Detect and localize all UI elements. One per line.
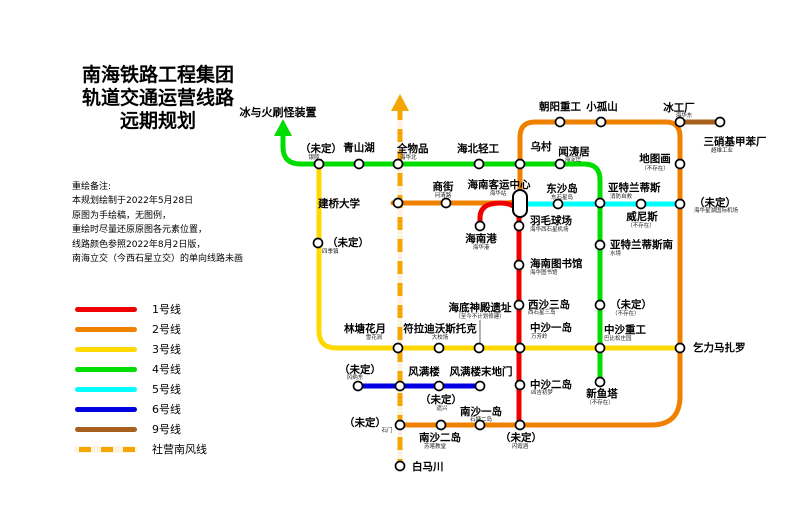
station-name: 海底神殿遗址 bbox=[449, 301, 512, 314]
station-yatelandisinan: 亚特兰蒂斯南 水境 bbox=[596, 238, 674, 257]
station-dot bbox=[596, 199, 605, 208]
station-name: 朝阳重工 bbox=[539, 100, 581, 113]
sheying-up-arrow-icon bbox=[391, 94, 409, 111]
station-dot bbox=[475, 344, 484, 353]
station-subname: 海华港 bbox=[473, 243, 490, 251]
station-dot bbox=[442, 199, 451, 208]
station-dot bbox=[476, 222, 485, 231]
station-dot bbox=[515, 301, 524, 310]
station-xishasandao: 西沙三岛 西石星三岛 bbox=[515, 298, 571, 316]
station-dot bbox=[596, 344, 605, 353]
line4-up-arrow-icon bbox=[274, 119, 292, 136]
station-name: （未定） bbox=[344, 416, 386, 429]
station-subname: 风纳东 bbox=[347, 373, 364, 381]
station-weiding-bucunzai: （未定） （不存在） bbox=[596, 298, 653, 317]
station-dot bbox=[516, 160, 525, 169]
station-dot bbox=[515, 261, 524, 270]
station-dot bbox=[515, 222, 524, 231]
interchange-pill bbox=[513, 190, 527, 217]
station-dot bbox=[516, 344, 525, 353]
station-name: 青山湖 bbox=[343, 141, 375, 154]
station-subname: （至今不计划修建） bbox=[455, 312, 505, 320]
station-subname: 海华东 bbox=[676, 111, 693, 119]
station-dot bbox=[596, 241, 605, 250]
station-jianqiaodaxue: 建桥大学 bbox=[317, 197, 403, 210]
station-hainangang: 海南港 海华港 bbox=[465, 222, 497, 252]
station-subname: 四季镇 bbox=[322, 247, 339, 255]
station-dot bbox=[716, 118, 725, 127]
station-subname: 石塘二岛 bbox=[470, 415, 493, 423]
station-dot bbox=[394, 344, 403, 353]
station-dot bbox=[676, 344, 685, 353]
station-name: 林塘花月 bbox=[344, 322, 386, 335]
station-name: （未定） bbox=[300, 142, 342, 155]
station-baimachuan: 白马川 bbox=[396, 460, 444, 473]
station-subname: 海华西石星机场 bbox=[530, 225, 569, 233]
station-subname: 超维工业 bbox=[711, 146, 734, 154]
station-name: 建桥大学 bbox=[317, 197, 360, 210]
station-weiding-airport: （未定） 海华星湖国际机场 bbox=[676, 196, 739, 214]
station-subname: 闪霞酒 bbox=[512, 442, 529, 450]
station-name: 乞力马扎罗 bbox=[693, 341, 746, 354]
station-dot bbox=[435, 382, 444, 391]
station-name: 亚特兰蒂斯 bbox=[608, 181, 661, 194]
station-subname: （不存在） bbox=[627, 221, 655, 229]
station-name: 海南港 bbox=[465, 232, 497, 245]
station-name: （未定） bbox=[420, 393, 462, 406]
station-dot bbox=[435, 344, 444, 353]
station-subname: 苏喀教堂 bbox=[424, 442, 447, 450]
station-subname: 石门 bbox=[381, 426, 392, 434]
station-subname: （不存在） bbox=[641, 164, 669, 172]
station-name: 亚特兰蒂斯南 bbox=[610, 238, 673, 251]
station-name: 威尼斯 bbox=[626, 210, 658, 223]
station-name: （未定） bbox=[610, 298, 652, 311]
station-name: 乌村 bbox=[531, 140, 552, 153]
station-dot bbox=[637, 200, 646, 209]
station-xinyuta: 新鱼塔 （不存在） bbox=[586, 378, 618, 407]
station-name: 海南客运中心 bbox=[468, 178, 531, 191]
station-subname: 海淀庄 bbox=[565, 155, 582, 163]
station-name: 海北轻工 bbox=[457, 142, 499, 155]
station-subname: 海华星湖国际机场 bbox=[694, 206, 739, 214]
station-dot bbox=[396, 382, 405, 391]
station-name: 南沙二岛 bbox=[419, 431, 461, 444]
station-subname: 雪花涧 bbox=[366, 333, 383, 341]
station-name: 全物品 bbox=[396, 142, 429, 155]
station-name: 商街 bbox=[433, 180, 454, 193]
station-dot bbox=[437, 421, 446, 430]
station-dot bbox=[355, 160, 364, 169]
station-qilimazhaluo: 乞力马扎罗 bbox=[676, 341, 746, 354]
station-subname: 海华图书馆 bbox=[530, 268, 558, 276]
station-dot bbox=[676, 200, 685, 209]
station-name: 羽毛球场 bbox=[530, 214, 572, 227]
station-name: （未定） bbox=[500, 431, 542, 444]
spawner-annotation: 冰与火刷怪装置 bbox=[240, 105, 317, 119]
station-dot bbox=[596, 378, 605, 387]
station-name: 三硝基甲苯厂 bbox=[704, 135, 767, 148]
station-hainankeyunzhongxin: 海南客运中心 海华站 bbox=[468, 178, 531, 217]
station-subname: 海华北 bbox=[400, 153, 417, 161]
station-weiding-shimen: （未定） 石门 bbox=[344, 416, 405, 434]
station-subname: 海华站 bbox=[490, 189, 507, 197]
station-subname: 遗兴 bbox=[436, 404, 448, 412]
station-name: 中沙重工 bbox=[604, 323, 646, 336]
station-subname: 万芳岭 bbox=[531, 332, 548, 340]
station-dot bbox=[556, 160, 565, 169]
station-dot bbox=[597, 118, 606, 127]
station-name: （未定） bbox=[327, 236, 369, 249]
station-dot bbox=[596, 301, 605, 310]
station-subname: 凶吉初梦 bbox=[531, 388, 554, 396]
station-name: 白马川 bbox=[412, 460, 444, 473]
station-dot bbox=[676, 160, 685, 169]
station-dot bbox=[556, 118, 565, 127]
station-name: 中沙一岛 bbox=[530, 321, 572, 334]
station-name: 风满楼 bbox=[408, 365, 440, 378]
station-hainantushuguan: 海南图书馆 海华图书馆 bbox=[515, 257, 583, 276]
station-dot bbox=[475, 160, 484, 169]
station-subname: 东石星岛 bbox=[551, 193, 574, 201]
station-name: 小孤山 bbox=[585, 100, 618, 113]
station-subname: 巴比松庄园 bbox=[604, 334, 632, 342]
station-name: 符拉迪沃斯托克 bbox=[403, 322, 477, 335]
station-dot bbox=[394, 199, 403, 208]
station-dot bbox=[396, 421, 405, 430]
station-subname: 西石星三岛 bbox=[528, 308, 556, 316]
station-subname: （不存在） bbox=[586, 398, 614, 406]
station-subname: （不存在） bbox=[612, 309, 640, 317]
station-subname: 大校场 bbox=[432, 333, 449, 341]
metro-map-canvas: 冰与火刷怪装置 （未定） 银陵 青山湖 全物品 海华北 海北轻工 乌村 闻涛居 … bbox=[0, 0, 800, 519]
station-name: 风满楼末地门 bbox=[450, 365, 513, 378]
station-name: 海南图书馆 bbox=[530, 257, 583, 270]
station-weiding-siji: （未定） 四季镇 bbox=[314, 236, 370, 255]
station-dot bbox=[476, 382, 485, 391]
station-subname: 消防自救 bbox=[610, 192, 633, 200]
station-dot bbox=[516, 421, 525, 430]
station-name: 新鱼塔 bbox=[586, 387, 618, 400]
station-dot bbox=[396, 462, 405, 471]
station-subname: 问清路 bbox=[435, 191, 452, 199]
station-zhongshaerdao: 中沙二岛 凶吉初梦 bbox=[516, 378, 573, 396]
metro-map-page: 南海铁路工程集团 轨道交通运营线路 远期规划 重绘备注: 本规划绘制于2022年… bbox=[0, 0, 800, 519]
station-dot bbox=[516, 381, 525, 390]
station-name: 地图画 bbox=[639, 152, 671, 165]
station-name: 东沙岛 bbox=[546, 182, 578, 195]
station-subname: 银陵 bbox=[308, 153, 320, 161]
station-subname: 水境 bbox=[610, 249, 622, 257]
station-dot bbox=[354, 382, 363, 391]
station-dot bbox=[314, 239, 323, 248]
